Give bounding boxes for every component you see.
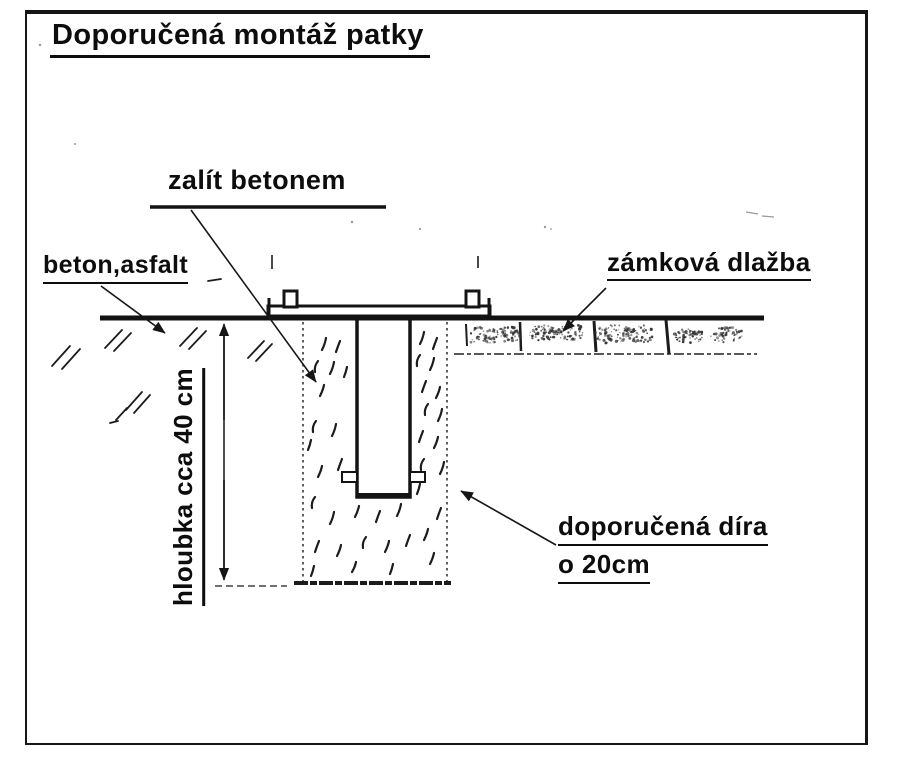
leader-recommended-hole (461, 491, 556, 545)
section-drawing (0, 0, 900, 768)
leader-interlocking-paving (563, 288, 606, 331)
base-plate (268, 255, 490, 316)
leader-concrete-asphalt (101, 286, 165, 333)
soil-hatch (52, 279, 272, 423)
anchor-bolt-right (466, 291, 479, 307)
drawing-sheet: Doporučená montáž patky zalít betonem be… (0, 0, 900, 768)
scan-artifacts (39, 44, 774, 230)
anchor-bolt-left (284, 291, 297, 307)
post-sleeve (342, 316, 425, 497)
sleeve-tab-right (410, 472, 425, 482)
paving-speckle-texture (470, 324, 743, 344)
sleeve-tab-left (342, 472, 357, 482)
paving-blocks (454, 320, 757, 354)
